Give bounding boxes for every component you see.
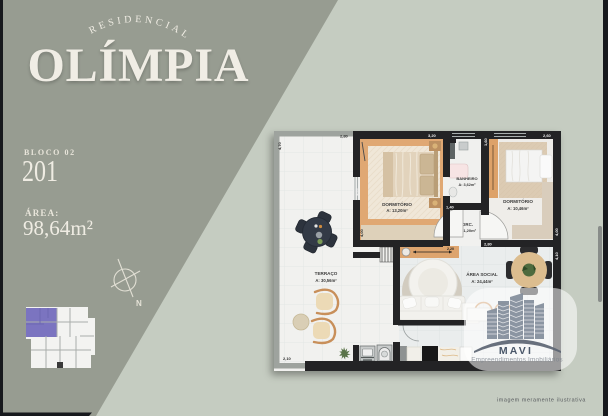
svg-text:4,00: 4,00 (554, 227, 559, 236)
svg-text:OLÍMPIA: OLÍMPIA (28, 39, 249, 92)
svg-text:A: 10,46m²: A: 10,46m² (507, 206, 529, 211)
svg-text:4,00: 4,00 (354, 187, 359, 196)
svg-text:DORMITÓRIO: DORMITÓRIO (503, 197, 533, 204)
svg-text:BANHEIRO: BANHEIRO (456, 176, 477, 181)
svg-text:1,40: 1,40 (446, 205, 455, 210)
svg-text:ÁREA SOCIAL: ÁREA SOCIAL (466, 271, 498, 277)
svg-text:2,20: 2,20 (447, 247, 454, 251)
svg-text:A: 13,20m²: A: 13,20m² (386, 208, 408, 213)
svg-text:3,20: 3,20 (428, 133, 437, 138)
svg-text:2,10: 2,10 (283, 356, 292, 361)
svg-text:4,00: 4,00 (359, 228, 364, 237)
svg-text:2,80: 2,80 (340, 134, 349, 139)
svg-text:DORMITÓRIO: DORMITÓRIO (382, 200, 412, 207)
svg-text:2,80: 2,80 (484, 242, 493, 247)
svg-text:98,64m²: 98,64m² (23, 216, 93, 240)
svg-text:N: N (136, 299, 142, 308)
svg-text:4,70: 4,70 (277, 141, 282, 150)
svg-text:imagem meramente ilustrativa: imagem meramente ilustrativa (497, 398, 586, 404)
svg-text:4,10: 4,10 (554, 251, 559, 260)
svg-text:2,60: 2,60 (543, 133, 552, 138)
svg-text:201: 201 (22, 153, 58, 188)
svg-text:A: 3,62m²: A: 3,62m² (458, 183, 476, 187)
svg-text:1,60: 1,60 (483, 137, 488, 146)
svg-text:TERRAÇO: TERRAÇO (315, 271, 338, 276)
svg-text:A: 30,56m²: A: 30,56m² (315, 278, 337, 283)
svg-text:MAVI: MAVI (499, 345, 533, 357)
svg-text:Empreendimentos Imobiliários: Empreendimentos Imobiliários (471, 357, 563, 364)
svg-text:A: 24,44m²: A: 24,44m² (471, 279, 493, 284)
